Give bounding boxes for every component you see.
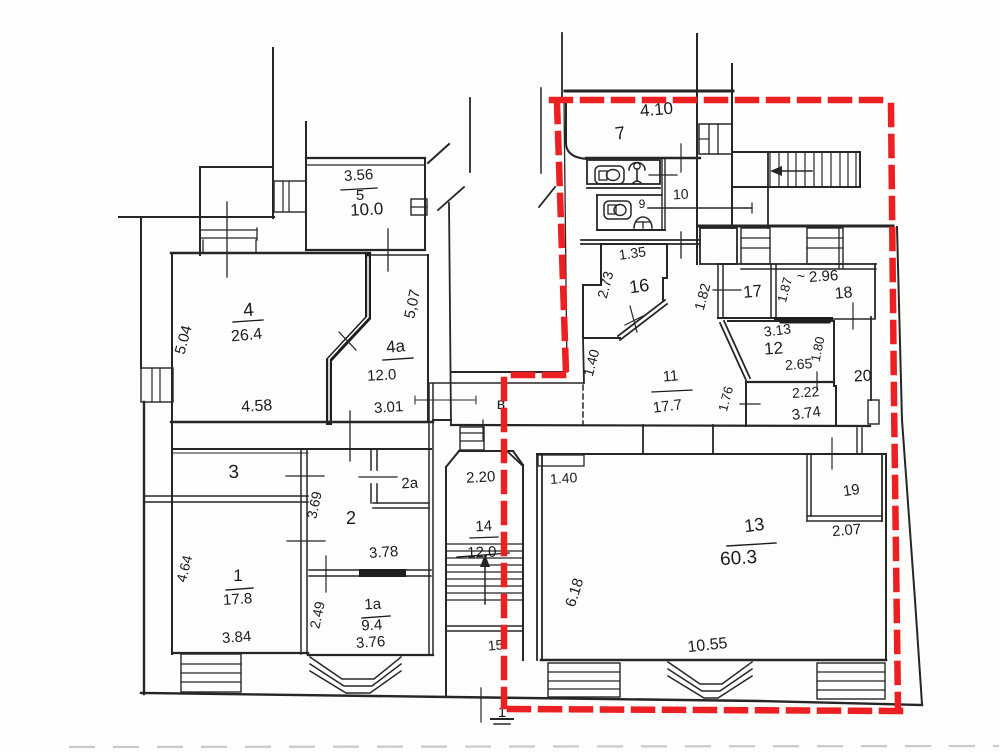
svg-text:7: 7 — [614, 122, 627, 143]
svg-text:17.7: 17.7 — [652, 396, 683, 416]
svg-text:4: 4 — [242, 300, 255, 322]
svg-text:14: 14 — [475, 518, 493, 536]
svg-text:2.49: 2.49 — [306, 600, 327, 630]
svg-text:1.35: 1.35 — [618, 243, 647, 263]
svg-text:10.55: 10.55 — [687, 635, 729, 656]
svg-text:4a: 4a — [385, 336, 406, 357]
svg-text:3.56: 3.56 — [344, 166, 374, 185]
svg-text:10: 10 — [673, 186, 690, 203]
svg-text:17.8: 17.8 — [223, 590, 253, 609]
svg-text:~: ~ — [797, 268, 805, 284]
svg-text:12.0: 12.0 — [467, 543, 497, 561]
svg-text:2.73: 2.73 — [594, 269, 617, 300]
svg-text:1.80: 1.80 — [808, 335, 828, 363]
svg-text:9.4: 9.4 — [361, 616, 383, 634]
svg-text:2: 2 — [346, 508, 356, 528]
svg-text:2.20: 2.20 — [466, 468, 496, 487]
svg-text:3.01: 3.01 — [374, 398, 404, 417]
svg-text:12: 12 — [764, 338, 784, 358]
svg-text:10.0: 10.0 — [350, 199, 384, 220]
svg-text:3.78: 3.78 — [369, 543, 399, 562]
svg-text:4.58: 4.58 — [241, 397, 273, 416]
svg-text:13: 13 — [743, 514, 765, 536]
svg-text:1.40: 1.40 — [550, 469, 579, 487]
svg-text:1a: 1a — [364, 596, 382, 614]
svg-text:2.22: 2.22 — [792, 383, 821, 401]
svg-text:26.4: 26.4 — [230, 326, 263, 346]
svg-text:60.3: 60.3 — [719, 547, 757, 571]
svg-text:3.13: 3.13 — [763, 320, 792, 339]
svg-text:12.0: 12.0 — [367, 366, 397, 385]
svg-text:6.18: 6.18 — [562, 576, 587, 609]
svg-text:3.84: 3.84 — [222, 628, 252, 647]
svg-text:17: 17 — [742, 281, 763, 302]
svg-text:1: 1 — [233, 566, 242, 585]
svg-text:5,07: 5,07 — [401, 288, 424, 320]
svg-text:2.07: 2.07 — [831, 521, 862, 540]
svg-text:11: 11 — [662, 367, 679, 385]
svg-text:9: 9 — [639, 197, 646, 211]
svg-text:19: 19 — [842, 481, 861, 500]
svg-text:3.76: 3.76 — [356, 633, 386, 652]
svg-text:5.04: 5.04 — [172, 324, 196, 357]
svg-text:16: 16 — [628, 275, 651, 298]
svg-text:2.96: 2.96 — [809, 267, 839, 286]
svg-text:1.82: 1.82 — [691, 281, 714, 312]
svg-text:4.64: 4.64 — [173, 553, 196, 584]
svg-text:18: 18 — [834, 284, 853, 302]
svg-text:20: 20 — [853, 368, 872, 386]
svg-text:2a: 2a — [401, 475, 419, 493]
svg-text:3: 3 — [228, 462, 240, 484]
svg-text:3.74: 3.74 — [791, 403, 822, 424]
svg-text:1.76: 1.76 — [715, 385, 736, 413]
svg-text:1.87: 1.87 — [774, 276, 795, 304]
